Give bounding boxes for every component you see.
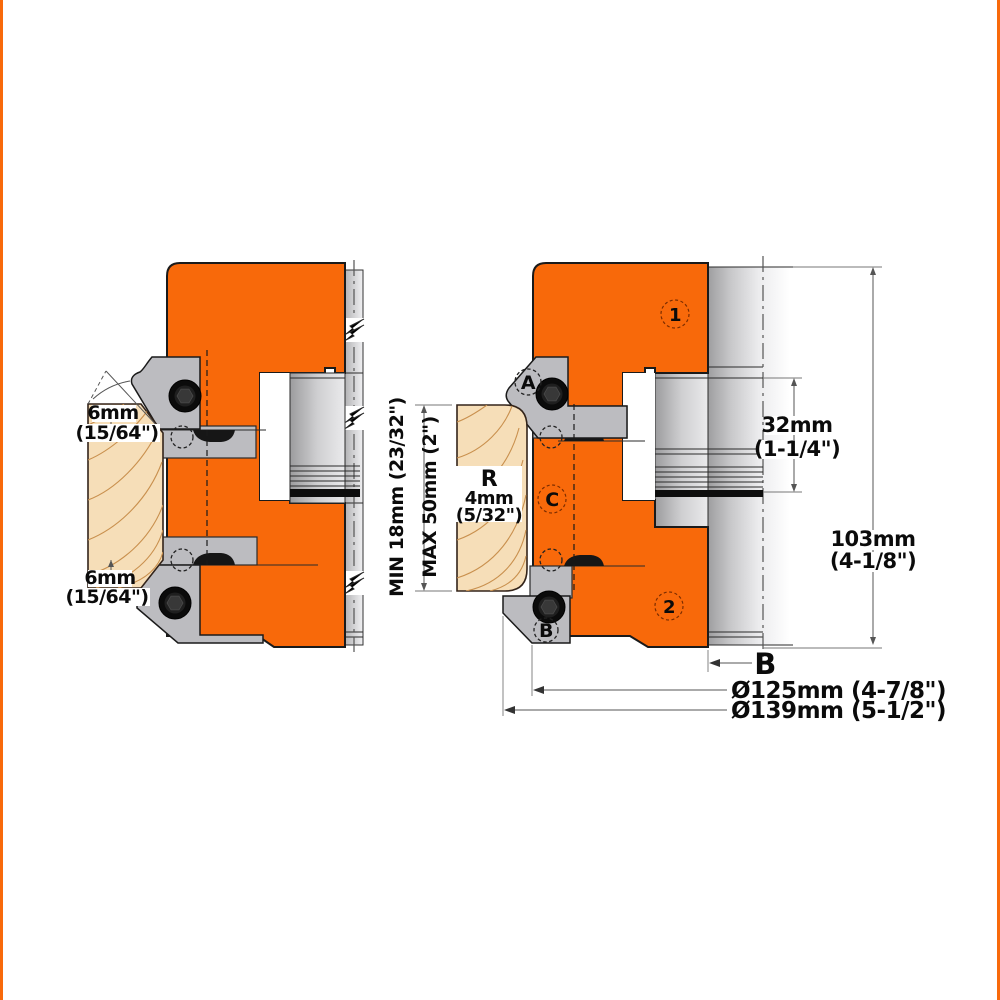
clamp-screw [169, 380, 201, 412]
marker-1: 1 [669, 305, 681, 326]
dim-32mm: 32mm [762, 413, 833, 437]
break-symbol [343, 571, 365, 595]
marker-b: B [539, 620, 553, 642]
cutting-diameter-dimension: Ø125mm (4-7/8") [532, 645, 946, 704]
dim-32mm-inch: (1-1/4") [754, 437, 840, 461]
dim-b-label: B [754, 647, 776, 681]
lock-ring [655, 490, 763, 497]
break-symbol [343, 406, 365, 430]
dim-103mm: 103mm [830, 527, 915, 551]
dim-6mm-top-inch: (15/64") [75, 422, 158, 444]
spindle-strip [343, 260, 365, 652]
stock-thickness-dimension: MIN 18mm (23/32") MAX 50mm (2") [386, 397, 452, 597]
lock-ring [290, 489, 360, 497]
radius-label: R 4mm (5/32") [456, 466, 522, 526]
cutter-head-diagram: 6mm (15/64") 6mm (15/64") [0, 0, 1000, 1000]
marker-c: C [545, 489, 558, 511]
dim-dia-139: Ø139mm (5-1/2") [731, 698, 946, 724]
break-symbol [343, 318, 365, 342]
dim-6mm-top: 6mm [87, 402, 138, 424]
workpiece: R 4mm (5/32") [456, 405, 527, 591]
body-groove [260, 373, 290, 500]
clamp-screw [159, 587, 191, 619]
drawing-page: 6mm (15/64") 6mm (15/64") [0, 0, 1000, 1000]
hub-width-dimension: B [708, 647, 776, 681]
stock-min-label: MIN 18mm (23/32") [386, 397, 408, 597]
right-view: A B [386, 256, 946, 724]
body-groove [623, 373, 655, 500]
clamp-screw [533, 591, 565, 623]
marker-a: A [521, 372, 536, 394]
marker-2: 2 [663, 597, 675, 618]
stock-max-label: MAX 50mm (2") [419, 416, 441, 578]
dim-103mm-inch: (4-1/8") [830, 549, 916, 573]
radius-inches: (5/32") [456, 505, 522, 526]
dim-6mm-bottom-inch: (15/64") [65, 586, 148, 608]
left-view: 6mm (15/64") 6mm (15/64") [65, 260, 365, 652]
